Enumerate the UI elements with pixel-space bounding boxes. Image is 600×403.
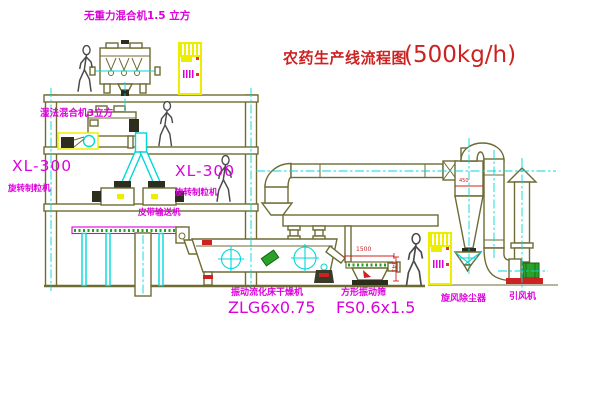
control-cabinet-ground xyxy=(428,232,452,285)
cabinet-vent-hatch xyxy=(180,44,200,57)
indicator-dot xyxy=(446,263,449,266)
label-dryer-name: 振动流化床干燥机 xyxy=(231,289,303,298)
fan-motor xyxy=(523,263,539,278)
process-flow-diagram: 农药生产线流程图 (500kg/h) 无重力混合机1.5 立方 湿法混合机3立方… xyxy=(0,0,600,403)
ground-line xyxy=(44,285,558,286)
induced-draft-fan xyxy=(506,259,543,284)
label-belt-conveyor: 皮带输送机 xyxy=(138,209,181,218)
person-ground xyxy=(406,234,422,286)
label-granulator-left-name: 旋转制粒机 xyxy=(8,185,51,194)
mixer-belt-drive xyxy=(58,133,98,149)
label-wet-mixer: 湿法混合机3立方 xyxy=(40,109,113,119)
granulator-left xyxy=(92,181,134,205)
cabinet-label-glyph xyxy=(433,260,445,268)
label-sieve-model: FS0.6x1.5 xyxy=(336,300,415,316)
label-sieve-name: 方形振动筛 xyxy=(341,289,386,298)
dim-sieve-length: 1500 xyxy=(356,247,371,253)
label-cyclone: 旋风除尘器 xyxy=(441,295,486,304)
control-cabinet-roof xyxy=(178,42,202,95)
cabinet-vent-hatch xyxy=(430,234,450,247)
label-granulator-left-model: XL-300 xyxy=(12,159,72,175)
cabinet-panel-strip xyxy=(181,57,192,62)
indicator-dot xyxy=(196,73,199,76)
label-granulator-mid-name: 旋转制粒机 xyxy=(175,189,218,198)
dryer-bellows xyxy=(288,226,325,240)
dim-sieve-height: 541 xyxy=(390,261,396,272)
indicator-dot xyxy=(446,247,449,250)
cyclone-discharge-cone xyxy=(455,252,481,271)
indicator-dot xyxy=(196,57,199,60)
diagram-capacity: (500kg/h) xyxy=(404,44,516,67)
fan-base xyxy=(506,278,543,284)
label-fan: 引风机 xyxy=(509,293,536,302)
y-feed-chute xyxy=(121,133,161,184)
fluid-bed-dryer xyxy=(192,164,438,286)
dryer-hood xyxy=(283,215,438,226)
label-granulator-mid-model: XL-300 xyxy=(175,164,235,180)
cabinet-label-glyph xyxy=(183,70,195,78)
dim-cyclone: 450 xyxy=(459,179,469,184)
label-gravity-mixer: 无重力混合机1.5 立方 xyxy=(84,11,190,22)
diagram-title: 农药生产线流程图 xyxy=(283,51,407,66)
square-sieve xyxy=(345,226,400,285)
person-floor3 xyxy=(159,102,173,147)
label-dryer-model: ZLG6x0.75 xyxy=(228,300,316,316)
cabinet-panel-strip xyxy=(431,247,442,252)
